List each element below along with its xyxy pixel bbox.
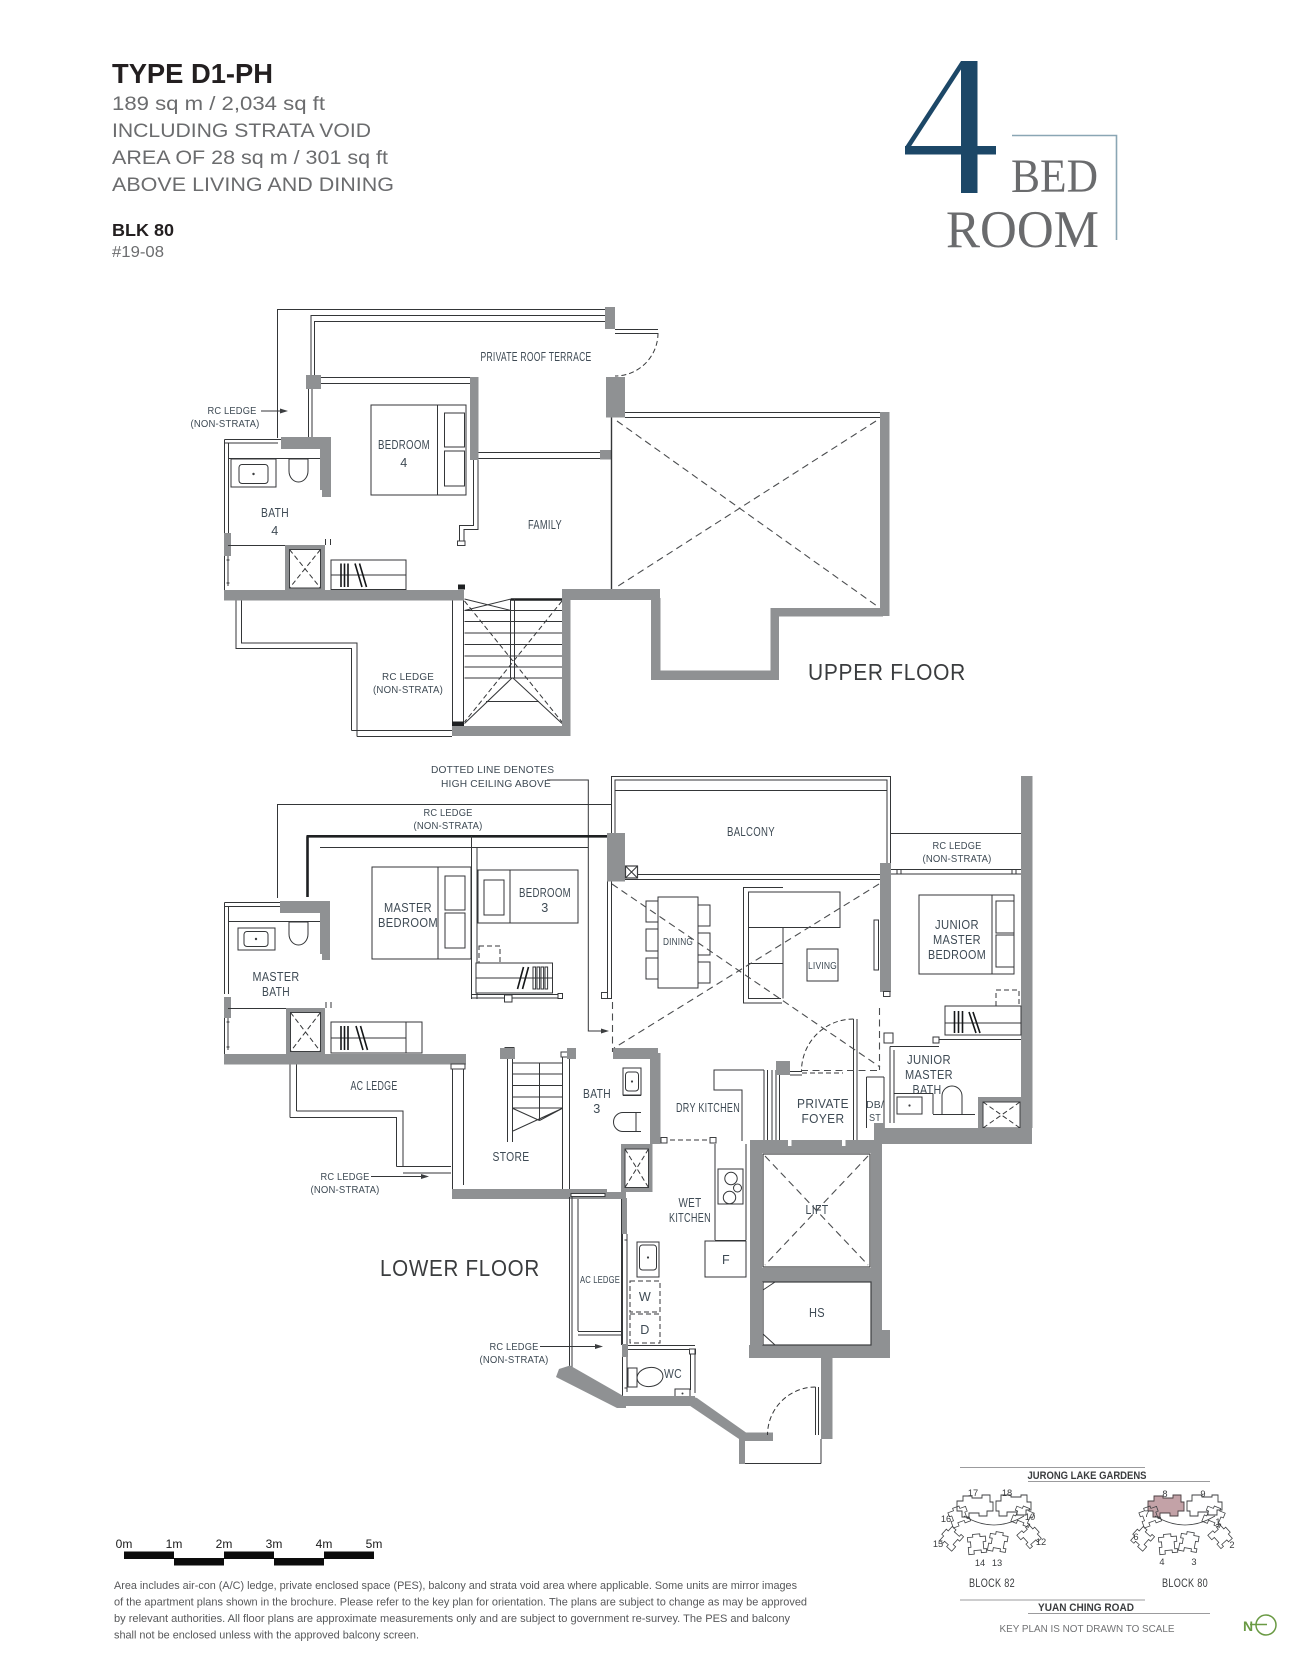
svg-text:15: 15 (933, 1539, 943, 1549)
svg-text:LOWER FLOOR: LOWER FLOOR (380, 1255, 540, 1281)
svg-text:MASTER: MASTER (384, 901, 432, 915)
svg-text:N: N (1243, 1618, 1253, 1634)
svg-text:AC LEDGE: AC LEDGE (351, 1079, 398, 1093)
svg-text:Area includes air-con (A/C) le: Area includes air-con (A/C) ledge, priva… (114, 1580, 798, 1592)
svg-text:4: 4 (271, 524, 278, 538)
svg-text:3: 3 (593, 1102, 600, 1116)
svg-text:W: W (639, 1290, 651, 1304)
svg-text:BLOCK 80: BLOCK 80 (1162, 1578, 1208, 1590)
svg-text:MASTER: MASTER (933, 933, 981, 947)
svg-text:LIVING: LIVING (808, 961, 837, 972)
svg-text:(NON-STRATA): (NON-STRATA) (480, 1355, 549, 1366)
svg-text:(NON-STRATA): (NON-STRATA) (373, 685, 443, 696)
svg-text:13: 13 (992, 1558, 1002, 1568)
svg-text:BEDROOM: BEDROOM (378, 438, 430, 452)
svg-text:(NON-STRATA): (NON-STRATA) (191, 419, 260, 430)
svg-text:DB/: DB/ (866, 1100, 884, 1111)
svg-text:STORE: STORE (493, 1150, 530, 1164)
svg-text:of the apartment plans shown i: of the apartment plans shown in the broc… (114, 1597, 807, 1609)
svg-text:2: 2 (1229, 1540, 1234, 1550)
svg-text:1: 1 (1215, 1517, 1220, 1527)
svg-text:14: 14 (975, 1558, 985, 1568)
svg-text:MASTER: MASTER (905, 1068, 953, 1082)
svg-text:18: 18 (1002, 1488, 1012, 1498)
svg-text:RC LEDGE: RC LEDGE (208, 406, 257, 417)
svg-text:3m: 3m (266, 1537, 283, 1551)
svg-text:FAMILY: FAMILY (528, 518, 562, 532)
svg-text:BEDROOM: BEDROOM (928, 948, 986, 962)
svg-text:D: D (640, 1323, 650, 1337)
svg-text:by relevant authorities. All f: by relevant authorities. All floor plans… (114, 1613, 791, 1625)
svg-text:HIGH CEILING ABOVE: HIGH CEILING ABOVE (441, 779, 551, 790)
svg-text:KEY PLAN IS NOT DRAWN TO SCALE: KEY PLAN IS NOT DRAWN TO SCALE (1000, 1623, 1175, 1635)
svg-text:DRY KITCHEN: DRY KITCHEN (676, 1101, 740, 1115)
svg-text:10: 10 (1025, 1512, 1035, 1522)
svg-text:WET: WET (679, 1196, 702, 1210)
svg-text:12: 12 (1036, 1537, 1046, 1547)
svg-text:YUAN CHING ROAD: YUAN CHING ROAD (1038, 1602, 1134, 1614)
svg-text:RC LEDGE: RC LEDGE (382, 672, 434, 683)
svg-text:BALCONY: BALCONY (727, 825, 775, 839)
svg-text:BEDROOM: BEDROOM (519, 886, 571, 900)
svg-text:BATH: BATH (261, 506, 289, 520)
svg-text:ST: ST (869, 1113, 881, 1124)
svg-text:189 sq m / 2,034 sq ft: 189 sq m / 2,034 sq ft (112, 93, 326, 115)
svg-text:WC: WC (664, 1367, 682, 1381)
svg-text:DOTTED LINE DENOTES: DOTTED LINE DENOTES (431, 765, 554, 776)
svg-text:TYPE D1-PH: TYPE D1-PH (112, 58, 273, 89)
svg-text:JUNIOR: JUNIOR (907, 1053, 951, 1067)
svg-text:4m: 4m (316, 1537, 333, 1551)
svg-text:#19-08: #19-08 (112, 244, 164, 261)
svg-text:RC LEDGE: RC LEDGE (321, 1172, 370, 1183)
svg-text:RC LEDGE: RC LEDGE (490, 1342, 539, 1353)
svg-text:6: 6 (1133, 1532, 1138, 1542)
svg-text:BATH: BATH (913, 1083, 942, 1097)
svg-text:UPPER FLOOR: UPPER FLOOR (808, 659, 966, 685)
svg-text:2m: 2m (216, 1537, 233, 1551)
svg-text:ABOVE LIVING AND DINING: ABOVE LIVING AND DINING (112, 174, 394, 196)
svg-text:DINING: DINING (663, 937, 693, 948)
svg-text:LIFT: LIFT (806, 1203, 829, 1217)
svg-text:FOYER: FOYER (802, 1112, 845, 1126)
svg-text:PRIVATE ROOF TERRACE: PRIVATE ROOF TERRACE (481, 350, 592, 364)
svg-text:RC LEDGE: RC LEDGE (424, 808, 473, 819)
svg-text:17: 17 (968, 1488, 978, 1498)
svg-text:8: 8 (1162, 1489, 1167, 1499)
svg-text:KITCHEN: KITCHEN (669, 1211, 711, 1225)
svg-text:3: 3 (1191, 1557, 1196, 1567)
svg-text:INCLUDING STRATA VOID: INCLUDING STRATA VOID (112, 120, 371, 142)
svg-text:BEDROOM: BEDROOM (378, 916, 438, 930)
svg-text:RC LEDGE: RC LEDGE (933, 841, 982, 852)
svg-text:PRIVATE: PRIVATE (797, 1097, 849, 1111)
svg-text:BATH: BATH (262, 985, 290, 999)
svg-text:4: 4 (1159, 1557, 1164, 1567)
svg-text:BED: BED (1011, 150, 1098, 203)
svg-text:(NON-STRATA): (NON-STRATA) (414, 821, 483, 832)
svg-text:F: F (722, 1253, 730, 1267)
svg-text:AREA OF 28 sq m / 301 sq ft: AREA OF 28 sq m / 301 sq ft (112, 147, 389, 169)
svg-text:7: 7 (1144, 1509, 1149, 1519)
svg-text:16: 16 (941, 1514, 951, 1524)
svg-text:shall not be enclosed unless w: shall not be enclosed unless with the ap… (114, 1630, 419, 1642)
svg-text:9: 9 (1200, 1489, 1205, 1499)
svg-text:HS: HS (809, 1306, 825, 1320)
svg-text:5m: 5m (366, 1537, 383, 1551)
svg-text:0m: 0m (116, 1537, 133, 1551)
svg-text:BATH: BATH (583, 1087, 611, 1101)
svg-text:ROOM: ROOM (946, 201, 1099, 259)
svg-text:(NON-STRATA): (NON-STRATA) (311, 1185, 380, 1196)
svg-text:MASTER: MASTER (253, 970, 300, 984)
svg-text:BLOCK 82: BLOCK 82 (969, 1578, 1015, 1590)
svg-text:JUNIOR: JUNIOR (935, 918, 979, 932)
svg-text:BLK 80: BLK 80 (112, 220, 174, 240)
svg-text:1m: 1m (166, 1537, 183, 1551)
svg-text:4: 4 (400, 456, 407, 470)
svg-text:3: 3 (541, 901, 548, 915)
svg-text:AC LEDGE: AC LEDGE (580, 1275, 620, 1286)
svg-text:JURONG LAKE GARDENS: JURONG LAKE GARDENS (1028, 1470, 1147, 1482)
svg-text:(NON-STRATA): (NON-STRATA) (923, 854, 992, 865)
